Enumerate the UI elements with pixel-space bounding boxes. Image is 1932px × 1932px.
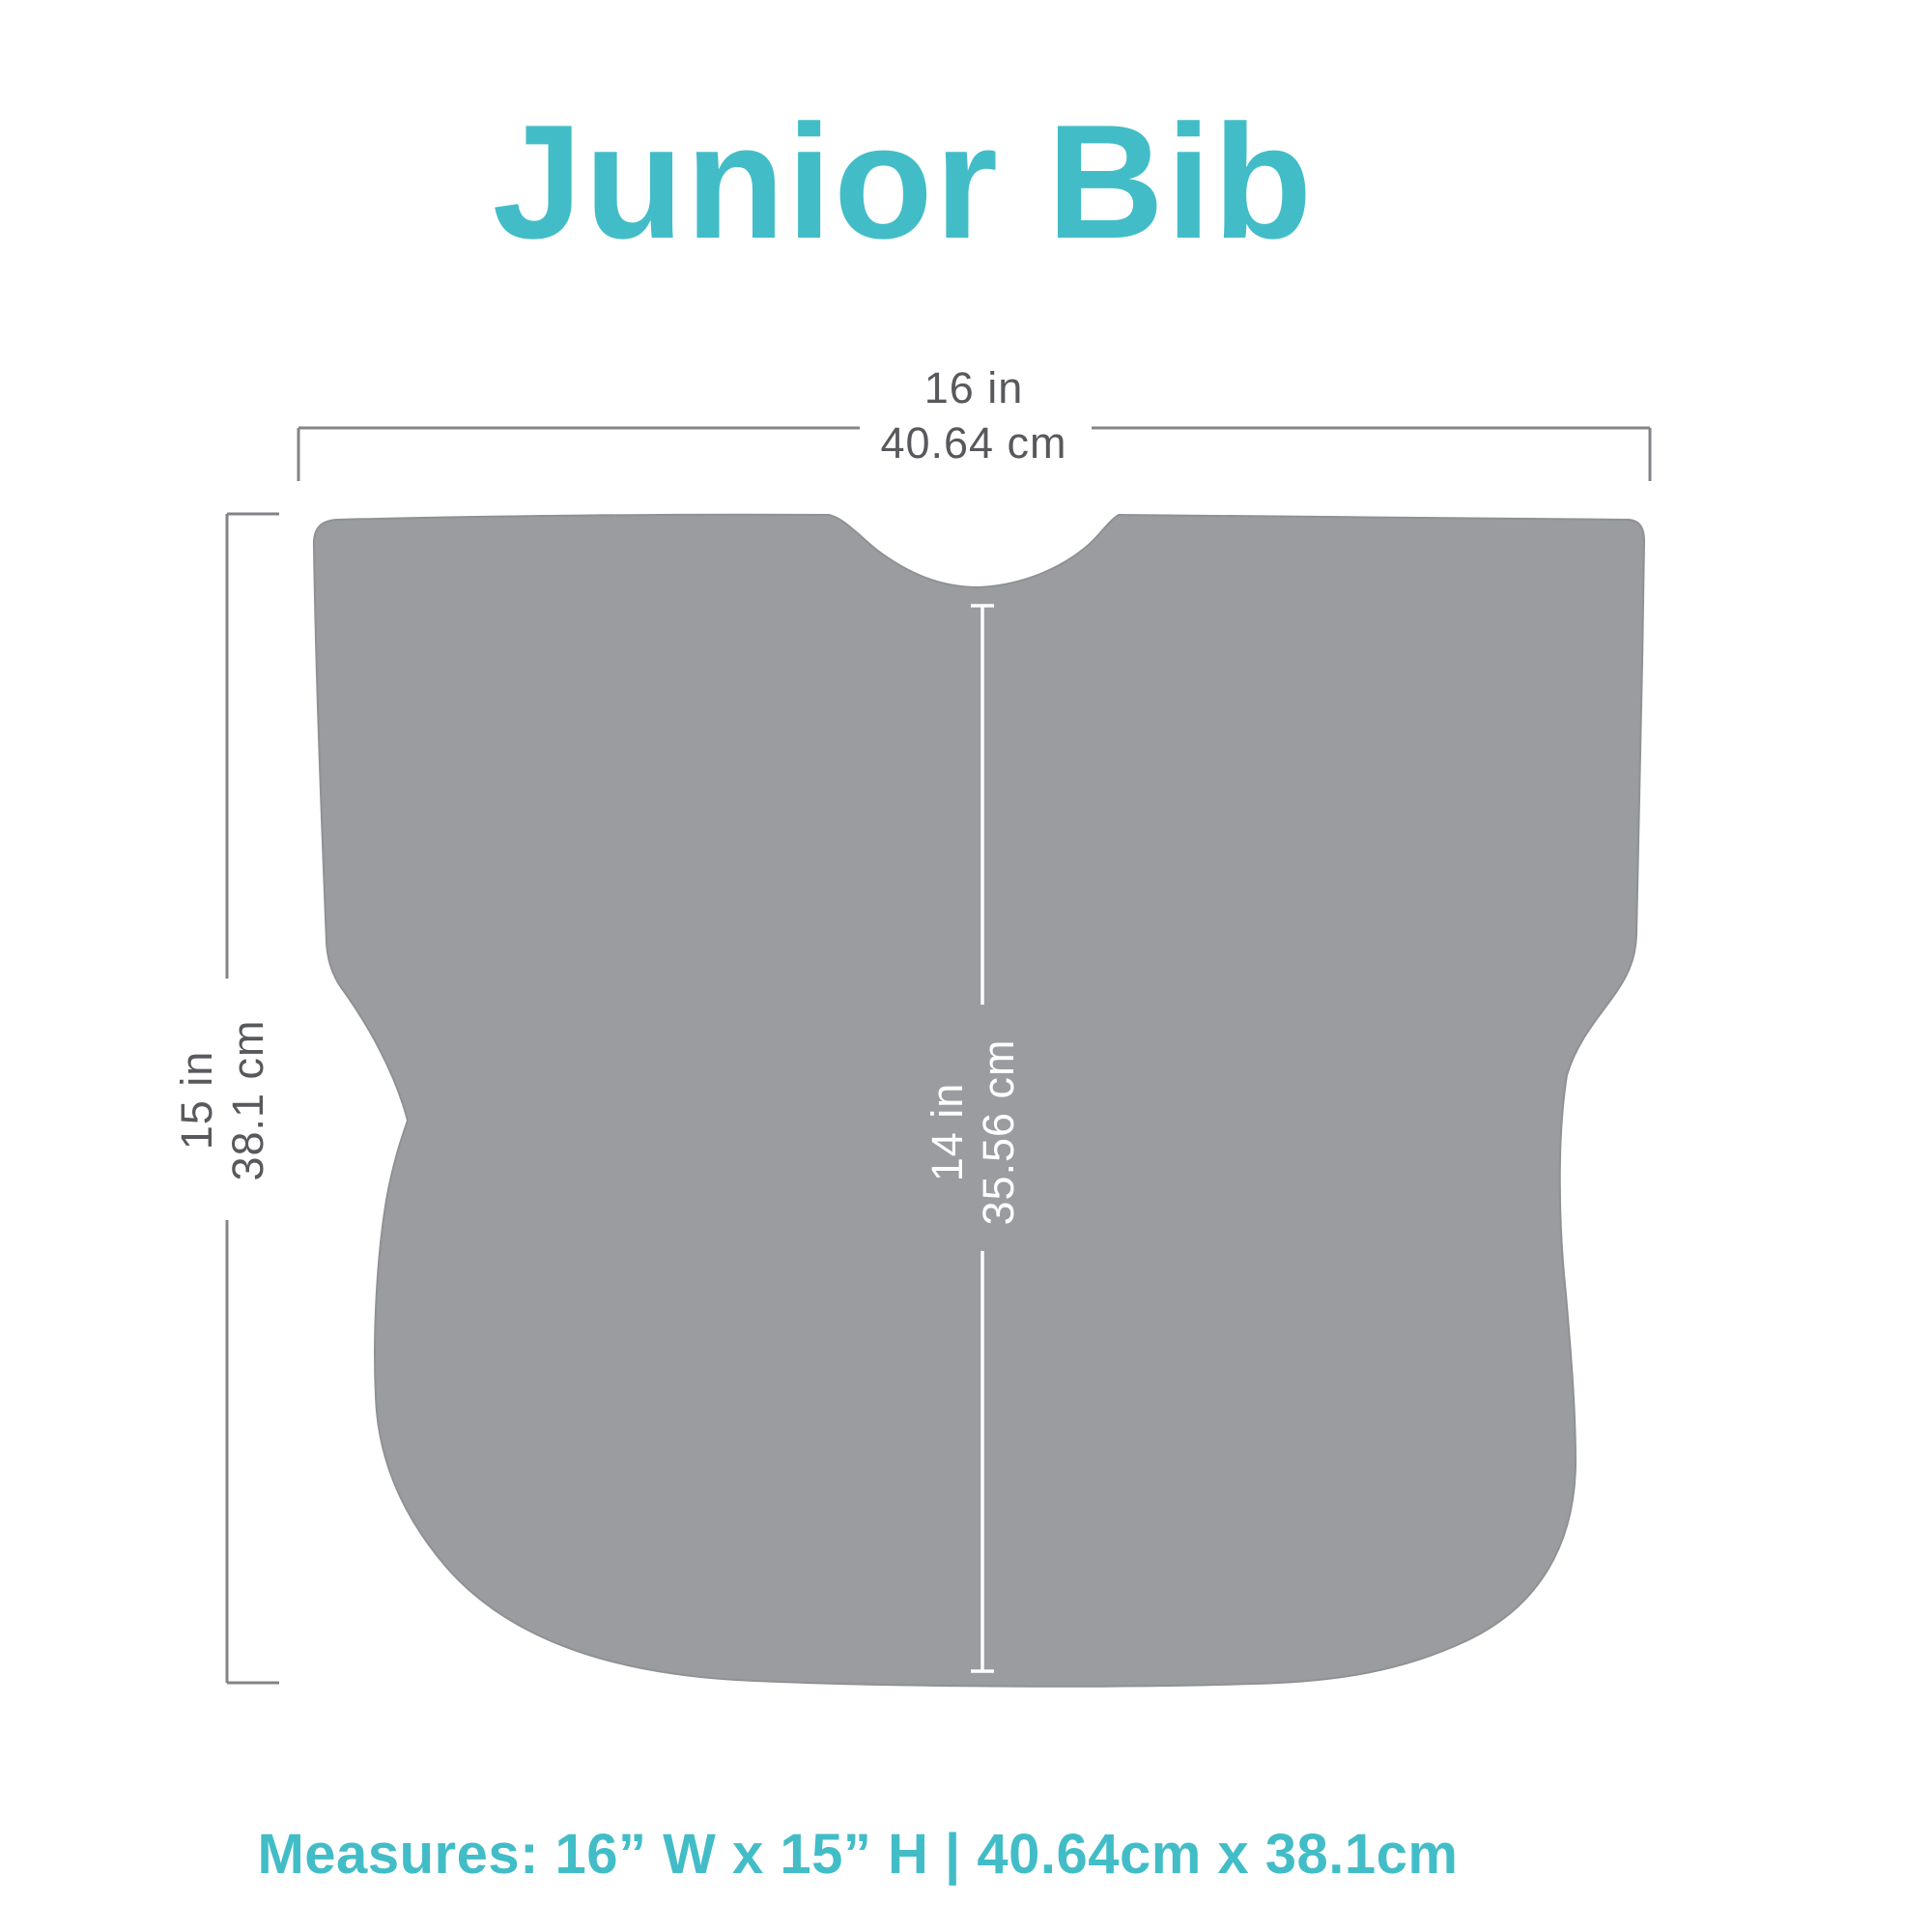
width-dimension-inches: 16 in	[880, 360, 1066, 415]
diagram-canvas: Junior Bib 16 in 40.64 cm 15 in 38.1 cm	[0, 0, 1932, 1932]
bib-diagram	[0, 0, 1932, 1932]
inner-height-dimension-cm: 35.56 cm	[973, 1038, 1024, 1225]
measurements-summary: Measures: 16” W x 15” H | 40.64cm x 38.1…	[257, 1824, 1458, 1886]
width-dimension-label: 16 in 40.64 cm	[880, 360, 1066, 470]
width-dimension-cm: 40.64 cm	[880, 415, 1066, 470]
inner-height-dimension-label: 14 in 35.56 cm	[922, 1038, 1024, 1225]
height-dimension-inches: 15 in	[171, 1019, 222, 1180]
height-dimension-cm: 38.1 cm	[222, 1019, 273, 1180]
inner-height-dimension-inches: 14 in	[922, 1038, 973, 1225]
height-dimension-label: 15 in 38.1 cm	[171, 1019, 273, 1180]
